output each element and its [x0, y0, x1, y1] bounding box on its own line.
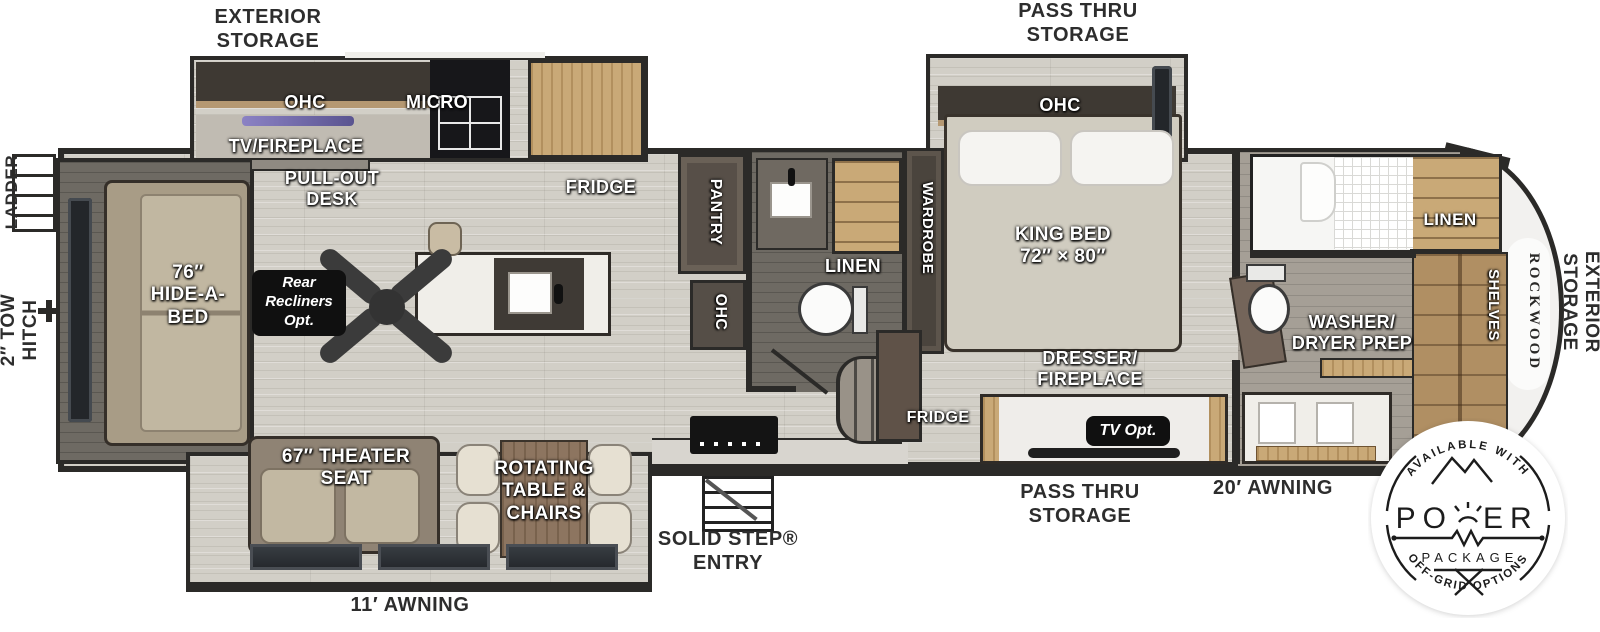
- solid-step-label: SOLID STEP® ENTRY: [640, 528, 816, 575]
- hide-a-bed-label: 76″ HIDE-A- BED: [118, 262, 258, 329]
- badge-package-text: PACKAGE: [1422, 550, 1519, 565]
- shower-bottom-edge: [1250, 250, 1416, 258]
- island-faucet: [554, 284, 563, 304]
- badge-word-left: PO: [1396, 502, 1453, 535]
- mid-toilet-tank: [852, 286, 868, 334]
- floorplan-diagram: EXTERIOR STORAGE PASS THRU STORAGE LADDE…: [0, 0, 1600, 632]
- slide-window-2: [378, 544, 490, 570]
- washer-dryer-ledge: [1320, 358, 1424, 378]
- rockwood-brand-label: ROCKWOOD: [1518, 242, 1542, 382]
- slide-window-3: [506, 544, 618, 570]
- bed-ohc-label: OHC: [1020, 95, 1100, 116]
- theater-seat-label: 67″ THEATER SEAT: [258, 446, 434, 491]
- ladder-label: LADDER: [2, 132, 26, 252]
- awning-front-label: 20′ AWNING: [1180, 477, 1366, 501]
- mid-bath-left-wall: [746, 152, 752, 392]
- pass-thru-top-label: PASS THRU STORAGE: [990, 0, 1166, 47]
- dresser-end-left: [983, 397, 999, 461]
- theater-slide-awning-rail: [190, 582, 648, 592]
- exterior-storage-front-label: EXTERIOR STORAGE: [1554, 217, 1600, 387]
- dresser-end-right: [1209, 397, 1225, 461]
- mid-linen-shelves: [832, 158, 902, 254]
- kitchen-ohc-label: OHC: [265, 92, 345, 113]
- mid-linen-label: LINEN: [793, 256, 913, 277]
- front-toilet-tank: [1246, 264, 1286, 282]
- king-bed-pillow-right: [1070, 130, 1174, 186]
- vanity-panel-left: [1258, 402, 1296, 444]
- kitchen-slide-window-gap: [345, 52, 545, 58]
- rotating-table-label: ROTATING TABLE & CHAIRS: [468, 458, 620, 525]
- wardrobe-label: WARDROBE: [912, 153, 936, 303]
- micro-label: MICRO: [397, 92, 477, 113]
- rear-recliners-opt-box: Rear Recliners Opt.: [252, 270, 346, 336]
- awning-living-label: 11′ AWNING: [310, 594, 510, 618]
- rear-window: [68, 198, 92, 422]
- slide-window-1: [250, 544, 362, 570]
- power-package-badge: AVAILABLE WITH PO ER PACKAGE OFF-GRID OP…: [1368, 418, 1568, 618]
- vanity-wood-base: [1256, 446, 1376, 461]
- ceiling-fan-hub: [369, 289, 405, 325]
- mid-bath-sink: [770, 182, 812, 218]
- front-linen-cabinet: [1410, 154, 1502, 252]
- mid-bath-faucet: [788, 168, 795, 186]
- shelves-label: SHELVES: [1478, 245, 1502, 365]
- mid-ohc-label: OHC: [705, 272, 729, 352]
- tv-opt-box: TV Opt.: [1086, 416, 1170, 446]
- front-bath-wall-bottom: [1232, 360, 1240, 464]
- pass-thru-bottom-label: PASS THRU STORAGE: [990, 481, 1170, 528]
- mid-toilet-bowl: [798, 282, 854, 336]
- island-sink: [508, 272, 552, 314]
- range-knobs: [700, 442, 770, 446]
- front-bath-wall-top: [1232, 150, 1240, 288]
- fridge-cabinet: [528, 60, 644, 158]
- dresser-fireplace-label: DRESSER/ FIREPLACE: [990, 348, 1190, 390]
- fridge-bedroom-label: FRIDGE: [878, 409, 998, 428]
- shower-seat: [1300, 162, 1336, 222]
- tow-hitch-label: 2″ TOW HITCH: [0, 265, 46, 395]
- tv-fireplace-unit: [242, 116, 354, 126]
- dresser-tv: [1028, 448, 1180, 458]
- fridge-living-label: FRIDGE: [541, 177, 661, 198]
- pull-out-desk-label: PULL-OUT DESK: [252, 168, 412, 210]
- tv-fireplace-label: TV/FIREPLACE: [196, 136, 396, 157]
- washer-dryer-label: WASHER/ DRYER PREP: [1252, 312, 1452, 354]
- front-linen-label: LINEN: [1395, 210, 1505, 230]
- king-bed-label: KING BED 72″ × 80″: [963, 224, 1163, 269]
- mid-bath-door-jamb: [750, 386, 796, 392]
- range-cooktop: [690, 416, 778, 454]
- shower-tile: [1334, 157, 1413, 249]
- exterior-storage-rear-label: EXTERIOR STORAGE: [180, 6, 356, 53]
- king-bed-pillow-left: [958, 130, 1062, 186]
- pantry-label: PANTRY: [700, 157, 724, 267]
- vanity-panel-right: [1316, 402, 1354, 444]
- divider-dot-right: [1539, 535, 1544, 540]
- divider-dot-left: [1391, 535, 1396, 540]
- badge-word-right: ER: [1483, 502, 1539, 535]
